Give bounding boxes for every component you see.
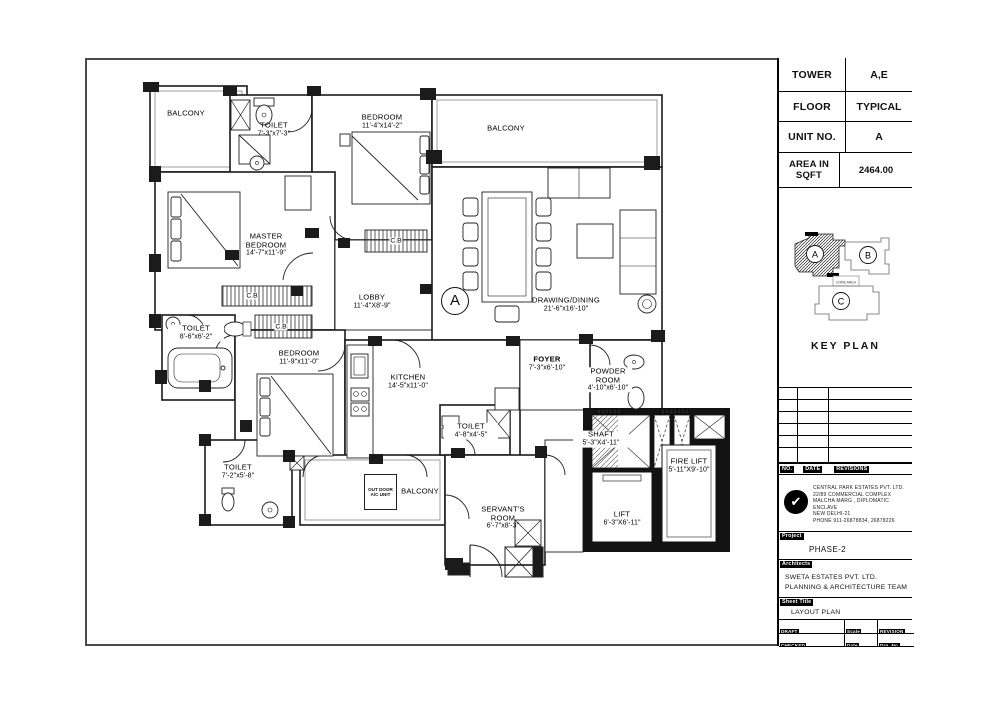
room-label-master-bedroom: MASTER BEDROOM 14'-7"x11'-9" bbox=[234, 232, 298, 257]
room-label-bedroom-top: BEDROOM 11'-4"x14'-2" bbox=[347, 114, 417, 131]
room-label-foyer: FOYER 7'-3"x6'-10" bbox=[518, 356, 576, 373]
svg-text:A: A bbox=[812, 250, 818, 260]
unit-no-label: UNIT NO. bbox=[779, 122, 846, 152]
svg-text:C: C bbox=[838, 297, 845, 307]
sheet-title-cell: Sheet Title LAYOUT PLAN bbox=[779, 598, 912, 620]
revisions-label: REVISIONS bbox=[834, 466, 869, 473]
tower-label: TOWER bbox=[779, 58, 846, 91]
floor-value: TYPICAL bbox=[846, 92, 912, 121]
title-block: TOWER A,E FLOOR TYPICAL UNIT NO. A AREA … bbox=[777, 58, 912, 646]
company-address: CENTRAL PARK ESTATES PVT. LTD. 22/89 COM… bbox=[813, 485, 912, 525]
area-value: 2464.00 bbox=[840, 153, 912, 187]
room-label-toilet-servant: TOILET 4'-8"x4'-5" bbox=[444, 423, 498, 440]
architects-label: Architects bbox=[780, 561, 812, 568]
row-area: AREA IN SQFT 2464.00 bbox=[779, 153, 912, 188]
room-label-powder-room: POWDER ROOM 4'-10"x6'-10" bbox=[584, 367, 632, 392]
room-label-bedroom-mid: BEDROOM 11'-9"x11'-0" bbox=[267, 350, 331, 367]
room-label-balcony-bottom: BALCONY bbox=[390, 488, 450, 497]
sheet-title-label: Sheet Title bbox=[780, 599, 813, 606]
architects-cell: Architects SWETA ESTATES PVT. LTD. PLANN… bbox=[779, 560, 912, 598]
room-label-fire-lift: FIRE LIFT 5'-11"X9'-10" bbox=[663, 458, 715, 475]
company-cell: ✔ CENTRAL PARK ESTATES PVT. LTD. 22/89 C… bbox=[779, 475, 912, 532]
svg-text:B: B bbox=[865, 251, 871, 261]
drawing-sheet: BALCONY TOILET 7'-3"x7'-3" BEDROOM 11'-4… bbox=[0, 0, 1000, 707]
room-label-toilet-top: TOILET 7'-3"x7'-3" bbox=[245, 122, 303, 139]
floor-label: FLOOR bbox=[779, 92, 846, 121]
date-cell: Date 06-12-14 bbox=[845, 634, 878, 648]
room-label-toilet-bottom: TOILET 7'-2"x5'-8" bbox=[210, 464, 266, 481]
key-plan-drawing: A B C CORE AREA bbox=[787, 230, 903, 330]
tower-value: A,E bbox=[846, 58, 912, 91]
architects-line1: SWETA ESTATES PVT. LTD. bbox=[785, 574, 877, 581]
scale-cell: Scale NTS bbox=[845, 620, 878, 634]
revision-rows bbox=[779, 388, 912, 463]
unit-marker: A bbox=[441, 287, 469, 315]
row-floor: FLOOR TYPICAL bbox=[779, 92, 912, 122]
sheet-title-value: LAYOUT PLAN bbox=[791, 609, 841, 616]
floor-plan bbox=[85, 58, 777, 644]
project-label: Project bbox=[780, 533, 804, 540]
project-value: PHASE-2 bbox=[809, 545, 846, 554]
company-logo: ✔ bbox=[784, 490, 808, 514]
key-plan-cell: A B C CORE AREA KEY PLAN bbox=[779, 188, 912, 388]
room-label-balcony-tl: BALCONY bbox=[156, 110, 216, 119]
row-tower: TOWER A,E bbox=[779, 58, 912, 92]
revision-header: NO. DATE REVISIONS bbox=[779, 463, 912, 475]
room-label-lobby: LOBBY 11'-4"X8'-9" bbox=[341, 294, 403, 311]
room-label-toilet-left: TOILET 8'-6"x6'-2" bbox=[168, 325, 224, 342]
cupboard-label-3: C.B bbox=[274, 324, 287, 331]
drg-no-cell: Drg. No. CP/PH-2/AR-01 bbox=[878, 634, 914, 648]
unit-no-value: A bbox=[846, 122, 912, 152]
room-label-shaft: SHAFT 5'-3"X4'-11" bbox=[573, 431, 629, 448]
checked-cell: CHECKED MR. DABAS bbox=[779, 634, 845, 648]
cupboard-label-1: C.B bbox=[389, 238, 402, 245]
revision-cell: REVISION R0 bbox=[878, 620, 914, 634]
outdoor-ac-unit: OUT DOOR A/C UNIT bbox=[364, 474, 397, 510]
room-label-servants-room: SERVANT'S ROOM 6'-7"x8'-3" bbox=[474, 505, 532, 530]
room-label-lift: LIFT 6'-3"X6'-11" bbox=[594, 511, 650, 528]
cupboard-label-2: C.B bbox=[245, 293, 258, 300]
room-label-balcony-tr: BALCONY bbox=[476, 125, 536, 134]
room-label-drawing-dining: DRAWING/DINING 21'-6"x16'-10" bbox=[520, 297, 612, 314]
date-label: DATE bbox=[803, 466, 822, 473]
architects-line2: PLANNING & ARCHITECTURE TEAM bbox=[785, 584, 907, 591]
room-label-kitchen: KITCHEN 14'-5"x11'-0" bbox=[376, 374, 440, 391]
svg-text:CORE AREA: CORE AREA bbox=[836, 281, 857, 285]
row-unit-no: UNIT NO. A bbox=[779, 122, 912, 153]
draft-cell: DRAFT RAVI bbox=[779, 620, 845, 634]
key-plan-title: KEY PLAN bbox=[779, 340, 912, 352]
area-label: AREA IN SQFT bbox=[779, 153, 840, 187]
no-label: NO. bbox=[780, 466, 794, 473]
meta-grid: DRAFT RAVI Scale NTS REVISION R0 CHECKED… bbox=[779, 620, 912, 647]
project-cell: Project PHASE-2 bbox=[779, 532, 912, 560]
